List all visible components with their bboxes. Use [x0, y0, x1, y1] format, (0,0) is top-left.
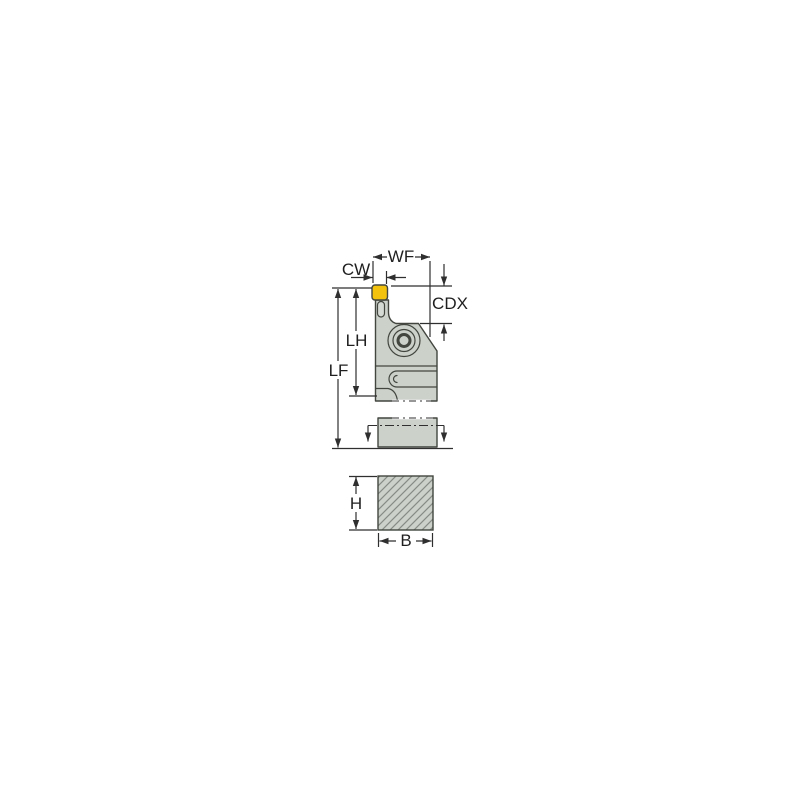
dim-label-wf: WF: [388, 247, 414, 266]
cutting-insert: [372, 285, 388, 300]
tool-holder-technical-drawing: WF CW CDX LH LF: [0, 0, 800, 800]
dim-label-cw: CW: [342, 260, 370, 279]
dim-label-h: H: [350, 494, 362, 513]
dim-label-lh: LH: [346, 331, 368, 350]
front-view: [372, 285, 437, 401]
shank-cross-section: [378, 476, 433, 530]
dim-label-lf: LF: [329, 361, 349, 380]
dim-label-cdx: CDX: [432, 294, 468, 313]
dim-label-b: B: [400, 531, 411, 550]
insert-seat-slot: [378, 302, 385, 318]
shank-side-view: [368, 418, 444, 447]
section-square-hatch: [378, 476, 433, 530]
shank-body: [378, 418, 437, 447]
catalog-drawing-page: WF CW CDX LH LF: [0, 0, 800, 800]
